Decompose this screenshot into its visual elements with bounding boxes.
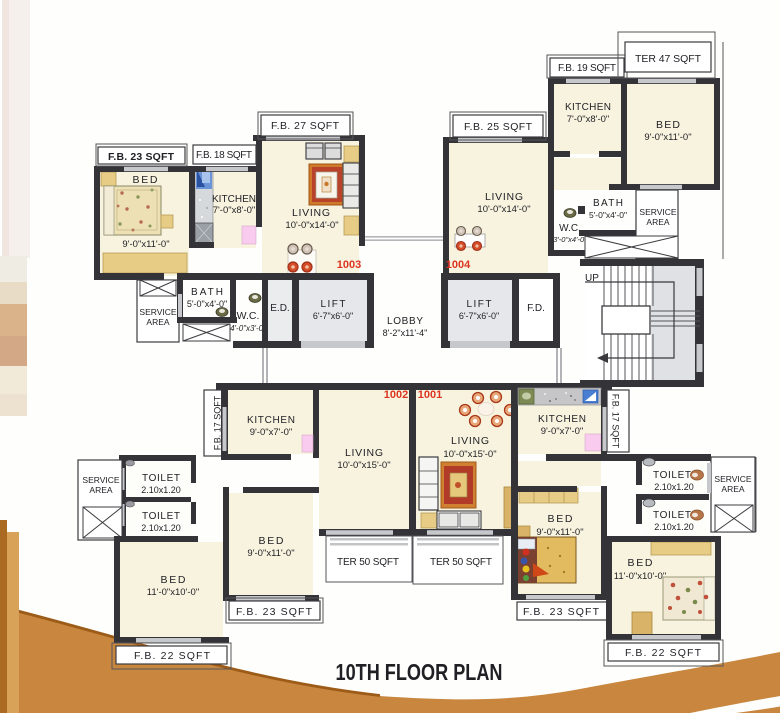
svg-text:F.B. 17 SQFT: F.B. 17 SQFT [611, 394, 621, 449]
svg-text:9'-0"x11'-0": 9'-0"x11'-0" [536, 527, 583, 538]
svg-text:KITCHEN: KITCHEN [212, 194, 256, 205]
svg-text:KITCHEN: KITCHEN [565, 102, 611, 113]
svg-text:1004: 1004 [446, 259, 471, 271]
svg-text:3'-0"x4'-0": 3'-0"x4'-0" [553, 235, 587, 244]
svg-text:BED: BED [548, 513, 573, 525]
svg-text:BATH: BATH [191, 287, 223, 298]
svg-text:W.C.: W.C. [237, 310, 260, 322]
svg-text:BED: BED [259, 535, 284, 547]
svg-text:F.B. 22 SQFT: F.B. 22 SQFT [134, 650, 211, 662]
svg-text:KITCHEN: KITCHEN [538, 414, 586, 425]
svg-text:2.10x1.20: 2.10x1.20 [654, 522, 694, 532]
svg-text:LIVING: LIVING [292, 207, 330, 219]
svg-text:TOILET: TOILET [142, 511, 180, 522]
svg-text:TOILET: TOILET [653, 510, 691, 521]
svg-text:LIVING: LIVING [345, 447, 383, 459]
svg-text:TER 50 SQFT: TER 50 SQFT [430, 557, 492, 568]
svg-text:2.10x1.20: 2.10x1.20 [141, 485, 181, 495]
svg-text:LIFT: LIFT [321, 299, 346, 310]
svg-text:9'-0"x7'-0": 9'-0"x7'-0" [541, 426, 584, 437]
svg-text:AREA: AREA [721, 484, 744, 494]
svg-text:5'-0"x4'-0": 5'-0"x4'-0" [589, 210, 627, 220]
svg-text:10'-0"x15'-0": 10'-0"x15'-0" [443, 449, 496, 460]
svg-text:F.D.: F.D. [527, 303, 545, 314]
svg-text:BED: BED [161, 574, 186, 586]
svg-text:7'-0"x8'-0": 7'-0"x8'-0" [213, 205, 256, 216]
svg-text:F.B. 22 SQFT: F.B. 22 SQFT [625, 647, 702, 659]
svg-text:F.B. 25 SQFT: F.B. 25 SQFT [464, 121, 533, 133]
svg-text:TOILET: TOILET [142, 473, 180, 484]
svg-text:1003: 1003 [337, 259, 361, 271]
svg-text:10'-0"x14'-0": 10'-0"x14'-0" [477, 204, 530, 215]
svg-text:F.B. 19 SQFT: F.B. 19 SQFT [558, 63, 616, 74]
svg-text:E.D.: E.D. [270, 303, 289, 314]
svg-text:AREA: AREA [146, 317, 169, 327]
svg-text:AREA: AREA [646, 217, 669, 227]
svg-text:SERVICE: SERVICE [714, 474, 751, 484]
svg-text:6'-7"x6'-0": 6'-7"x6'-0" [313, 311, 353, 321]
svg-text:1001: 1001 [418, 389, 442, 401]
svg-text:11'-0"x10'-0": 11'-0"x10'-0" [614, 571, 666, 582]
svg-text:1002: 1002 [384, 389, 408, 401]
svg-text:LIFT: LIFT [467, 299, 492, 310]
svg-text:SERVICE: SERVICE [139, 307, 176, 317]
svg-text:BED: BED [628, 557, 653, 569]
svg-text:LIVING: LIVING [485, 191, 523, 203]
svg-text:10'-0"x14'-0": 10'-0"x14'-0" [285, 220, 338, 231]
svg-text:AREA: AREA [89, 485, 112, 495]
svg-text:8'-2"x11'-4": 8'-2"x11'-4" [383, 328, 428, 338]
svg-text:2.10x1.20: 2.10x1.20 [141, 523, 181, 533]
svg-text:LIVING: LIVING [451, 435, 489, 447]
svg-text:UP: UP [585, 273, 599, 284]
svg-text:4'-0"x3'-0": 4'-0"x3'-0" [230, 324, 267, 333]
svg-text:BED: BED [133, 174, 158, 186]
svg-text:F.B. 27 SQFT: F.B. 27 SQFT [271, 120, 340, 132]
svg-text:LOBBY: LOBBY [387, 316, 423, 327]
svg-text:SERVICE: SERVICE [639, 207, 676, 217]
svg-text:W.C.: W.C. [559, 223, 581, 234]
svg-text:TER 50 SQFT: TER 50 SQFT [337, 557, 399, 568]
svg-text:F.B. 23 SQFT: F.B. 23 SQFT [523, 606, 600, 618]
svg-text:10'-0"x15'-0": 10'-0"x15'-0" [337, 460, 390, 471]
svg-text:6'-7"x6'-0": 6'-7"x6'-0" [459, 311, 499, 321]
svg-text:7'-0"x8'-0": 7'-0"x8'-0" [567, 114, 610, 125]
svg-text:F.B. 18 SQFT: F.B. 18 SQFT [196, 150, 252, 161]
svg-text:9'-0"x7'-0": 9'-0"x7'-0" [250, 427, 293, 438]
svg-text:9'-0"x11'-0": 9'-0"x11'-0" [644, 132, 691, 143]
svg-text:2.10x1.20: 2.10x1.20 [654, 482, 694, 492]
svg-text:BED: BED [656, 119, 680, 131]
svg-text:BATH: BATH [593, 198, 623, 209]
svg-text:10TH FLOOR PLAN: 10TH FLOOR PLAN [336, 659, 503, 685]
svg-text:9'-0"x11'-0": 9'-0"x11'-0" [122, 239, 169, 250]
svg-text:KITCHEN: KITCHEN [247, 415, 295, 426]
svg-text:TOILET: TOILET [653, 470, 691, 481]
svg-text:F.B. 23 SQFT: F.B. 23 SQFT [236, 606, 313, 618]
svg-text:SERVICE: SERVICE [82, 475, 119, 485]
svg-text:TER 47 SQFT: TER 47 SQFT [635, 53, 702, 65]
svg-text:11'-0"x10'-0": 11'-0"x10'-0" [147, 587, 199, 598]
svg-text:9'-0"x11'-0": 9'-0"x11'-0" [247, 548, 294, 559]
svg-text:F.B. 23 SQFT: F.B. 23 SQFT [108, 151, 175, 163]
